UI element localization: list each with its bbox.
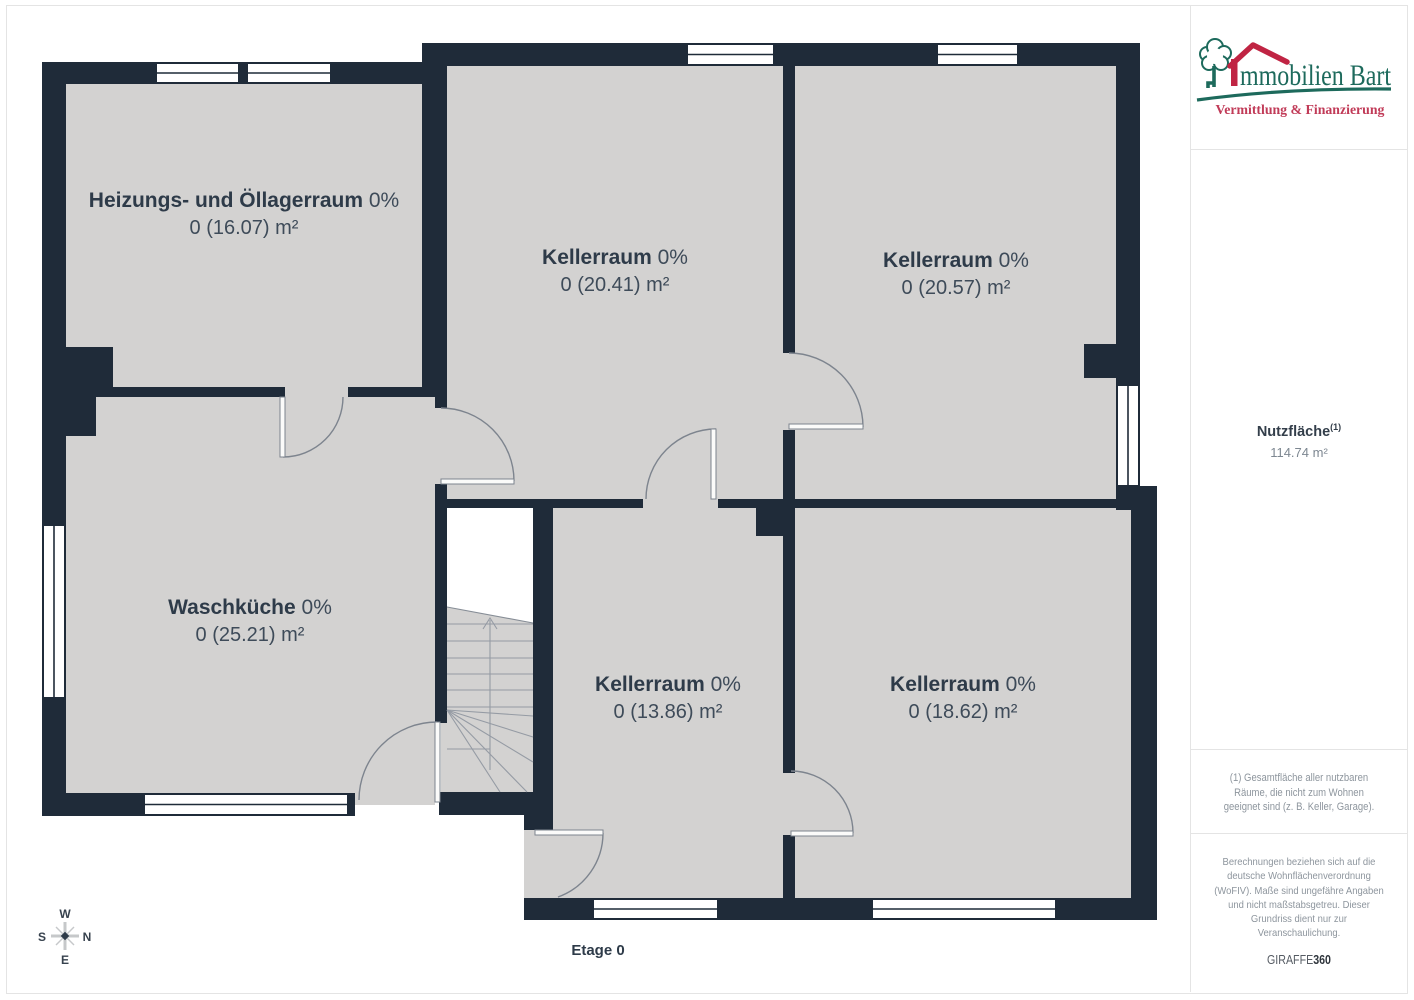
svg-text:0 (20.57) m²: 0 (20.57) m² — [902, 277, 1011, 299]
svg-text:0 (25.21) m²: 0 (25.21) m² — [196, 624, 305, 646]
svg-text:mmobilien Bart: mmobilien Bart — [1240, 59, 1392, 92]
svg-text:S: S — [38, 930, 46, 944]
svg-text:Kellerraum 0%: Kellerraum 0% — [542, 246, 688, 269]
svg-text:Kellerraum 0%: Kellerraum 0% — [890, 673, 1036, 696]
svg-text:Heizungs- und Öllagerraum 0%: Heizungs- und Öllagerraum 0% — [89, 189, 399, 212]
svg-text:Kellerraum 0%: Kellerraum 0% — [883, 249, 1029, 272]
svg-text:0 (18.62) m²: 0 (18.62) m² — [909, 701, 1018, 723]
svg-text:W: W — [59, 907, 71, 921]
svg-text:0 (13.86) m²: 0 (13.86) m² — [614, 701, 723, 723]
svg-text:Waschküche 0%: Waschküche 0% — [168, 596, 332, 619]
svg-text:0 (20.41) m²: 0 (20.41) m² — [561, 274, 670, 296]
svg-text:Kellerraum 0%: Kellerraum 0% — [595, 673, 741, 696]
svg-text:Etage 0: Etage 0 — [571, 942, 624, 959]
svg-text:E: E — [61, 953, 69, 967]
svg-text:Vermittlung & Finanzierung: Vermittlung & Finanzierung — [1216, 102, 1385, 117]
svg-text:N: N — [83, 930, 92, 944]
svg-text:0 (16.07) m²: 0 (16.07) m² — [190, 217, 299, 239]
